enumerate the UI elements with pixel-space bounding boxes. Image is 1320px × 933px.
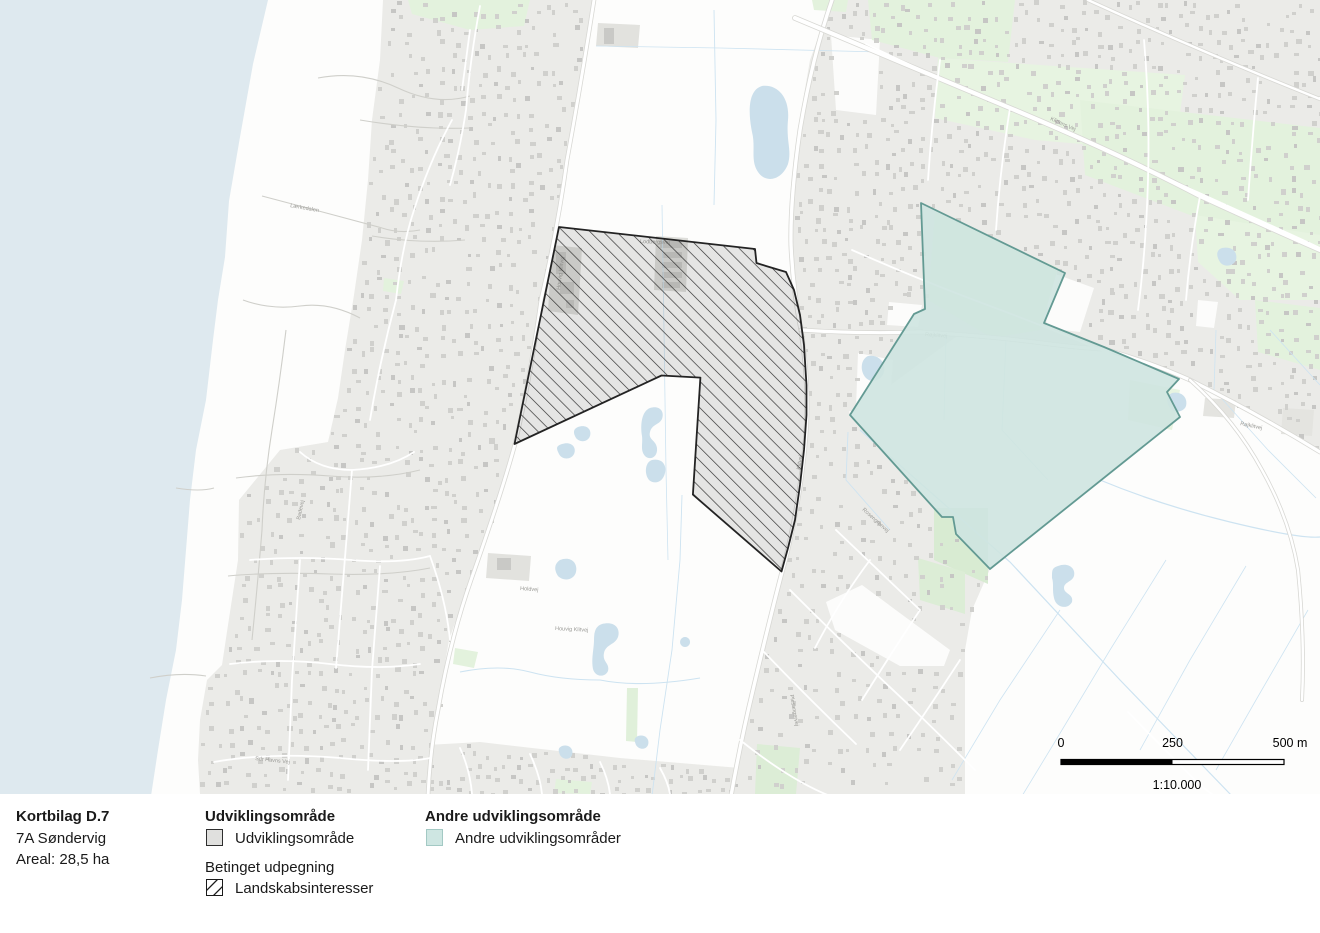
- svg-text:1:10.000: 1:10.000: [1153, 778, 1202, 792]
- svg-text:250: 250: [1162, 736, 1183, 750]
- svg-text:500 m: 500 m: [1273, 736, 1308, 750]
- svg-text:Holdvej: Holdvej: [520, 586, 539, 593]
- svg-text:0: 0: [1058, 736, 1065, 750]
